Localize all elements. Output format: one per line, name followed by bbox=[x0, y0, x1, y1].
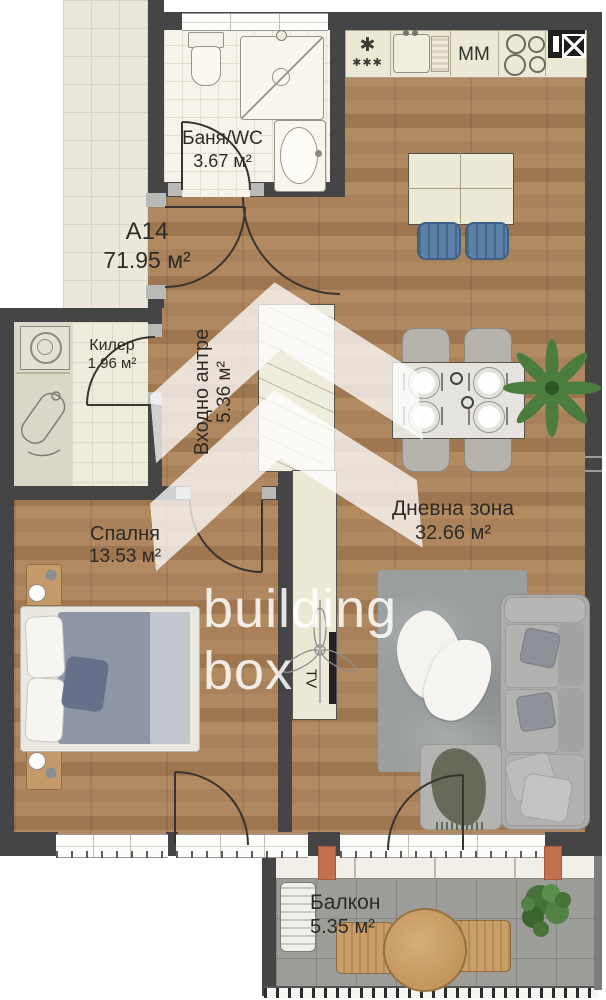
cup-1 bbox=[450, 372, 463, 385]
washing-machine-drum bbox=[37, 339, 53, 355]
bed-pillow-2 bbox=[24, 677, 65, 743]
burner-1 bbox=[506, 34, 526, 54]
storage-label: Килер 1.96 м² bbox=[72, 336, 152, 373]
unit-number: A14 bbox=[72, 218, 222, 247]
corridor-white-area bbox=[0, 0, 63, 308]
hallway-name: Входно антре bbox=[190, 307, 214, 477]
sofa-back-1 bbox=[558, 622, 584, 686]
lamp-1 bbox=[28, 584, 46, 602]
bedroom-label: Спалня 13.53 м² bbox=[55, 522, 195, 569]
entrance-jamb-bottom bbox=[146, 285, 166, 299]
hallway-label: Входно антре 5.36 м² bbox=[190, 307, 254, 477]
watermark-line-1: building bbox=[203, 578, 397, 640]
washbasin-bowl bbox=[280, 127, 318, 184]
balcony-pier-left bbox=[318, 846, 336, 880]
sink-tap-2 bbox=[412, 30, 418, 36]
living-name: Дневна зона bbox=[378, 496, 528, 521]
living-label: Дневна зона 32.66 м² bbox=[378, 496, 528, 545]
shower-drain bbox=[272, 68, 290, 86]
sink-tap-1 bbox=[403, 30, 409, 36]
bed-accent-pillow bbox=[61, 655, 110, 712]
washbasin-tap bbox=[315, 150, 322, 157]
kitchen-island bbox=[408, 153, 514, 225]
balcony-name: Балкон bbox=[310, 890, 410, 915]
island-grid-h bbox=[408, 188, 512, 189]
bar-chair-1 bbox=[417, 222, 461, 260]
bathroom-window bbox=[182, 13, 328, 31]
counter-divider-4 bbox=[545, 30, 546, 76]
balcony-area: 5.35 м² bbox=[310, 915, 410, 939]
storage-area: 1.96 м² bbox=[72, 355, 152, 373]
counter-divider-3 bbox=[498, 30, 499, 76]
bedroom-name: Спалня bbox=[55, 522, 195, 546]
bedroom-area: 13.53 м² bbox=[55, 546, 195, 569]
microwave-label: MM bbox=[450, 44, 498, 66]
sofa-back-2 bbox=[558, 688, 584, 752]
unit-label: A14 71.95 м² bbox=[72, 218, 222, 274]
window-track-bedroom bbox=[56, 851, 308, 858]
wall-balcony-left bbox=[262, 856, 276, 996]
floor-plan: ✱ ✱✱✱ MM TV bbox=[0, 0, 606, 1000]
counter-divider-1 bbox=[390, 30, 391, 76]
shower-head-icon bbox=[276, 30, 287, 41]
bathroom-name: Баня/WC bbox=[160, 128, 285, 151]
plate-2 bbox=[473, 367, 505, 399]
bathroom-label: Баня/WC 3.67 м² bbox=[160, 128, 285, 172]
lamp-2 bbox=[28, 752, 46, 770]
bathroom-area: 3.67 м² bbox=[160, 151, 285, 173]
watermark-text: building box bbox=[203, 578, 397, 702]
kitchen-sink bbox=[393, 34, 430, 73]
wall-corridor-left-upper bbox=[148, 0, 164, 207]
bath-door-jamb-right bbox=[250, 183, 264, 196]
vent-x-icon bbox=[562, 34, 586, 58]
sofa-pillow-2 bbox=[515, 691, 556, 732]
fridge-stars-symbol: ✱✱✱ bbox=[345, 56, 390, 69]
toilet-bowl bbox=[191, 46, 221, 86]
oven-handle bbox=[553, 36, 559, 52]
wall-left-outer bbox=[0, 308, 14, 856]
entrance-jamb-top bbox=[146, 193, 166, 207]
wall-joint-line-2 bbox=[585, 470, 602, 472]
wall-bottom-a bbox=[14, 832, 58, 856]
window-track-balcony bbox=[340, 851, 545, 858]
hallway-area: 5.36 м² bbox=[214, 307, 237, 477]
wall-joint-line-1 bbox=[585, 456, 602, 458]
bedroom-door-jamb-right bbox=[262, 487, 276, 499]
fridge-star-symbol: ✱ bbox=[345, 34, 390, 57]
balcony-label: Балкон 5.35 м² bbox=[310, 890, 410, 939]
plate-4 bbox=[473, 401, 505, 433]
bar-chair-2 bbox=[465, 222, 509, 260]
storage-shelf-line bbox=[16, 372, 70, 374]
balcony-right-edge bbox=[594, 856, 602, 990]
burner-4 bbox=[529, 56, 546, 73]
balcony-pier-right bbox=[544, 846, 562, 880]
burner-3 bbox=[504, 54, 526, 76]
watermark-line-2: box bbox=[203, 640, 397, 702]
storage-name: Килер bbox=[72, 336, 152, 355]
bed-pillow-1 bbox=[24, 615, 65, 679]
wall-bathroom-right bbox=[330, 12, 345, 197]
sofa-armrest bbox=[504, 597, 586, 623]
sofa-pillow-1 bbox=[519, 627, 562, 670]
wall-storage-top bbox=[0, 308, 162, 322]
sofa-corner-pillow-2 bbox=[519, 772, 574, 824]
living-area: 32.66 м² bbox=[378, 521, 528, 545]
cup-2 bbox=[461, 396, 474, 409]
bed-throw bbox=[150, 612, 190, 744]
blanket-fringe bbox=[436, 822, 486, 830]
burner-2 bbox=[528, 36, 545, 53]
top-margin bbox=[148, 0, 606, 12]
bath-door-jamb-left bbox=[168, 183, 182, 196]
unit-area: 71.95 м² bbox=[72, 247, 222, 275]
kitchen-drawers bbox=[431, 36, 449, 72]
